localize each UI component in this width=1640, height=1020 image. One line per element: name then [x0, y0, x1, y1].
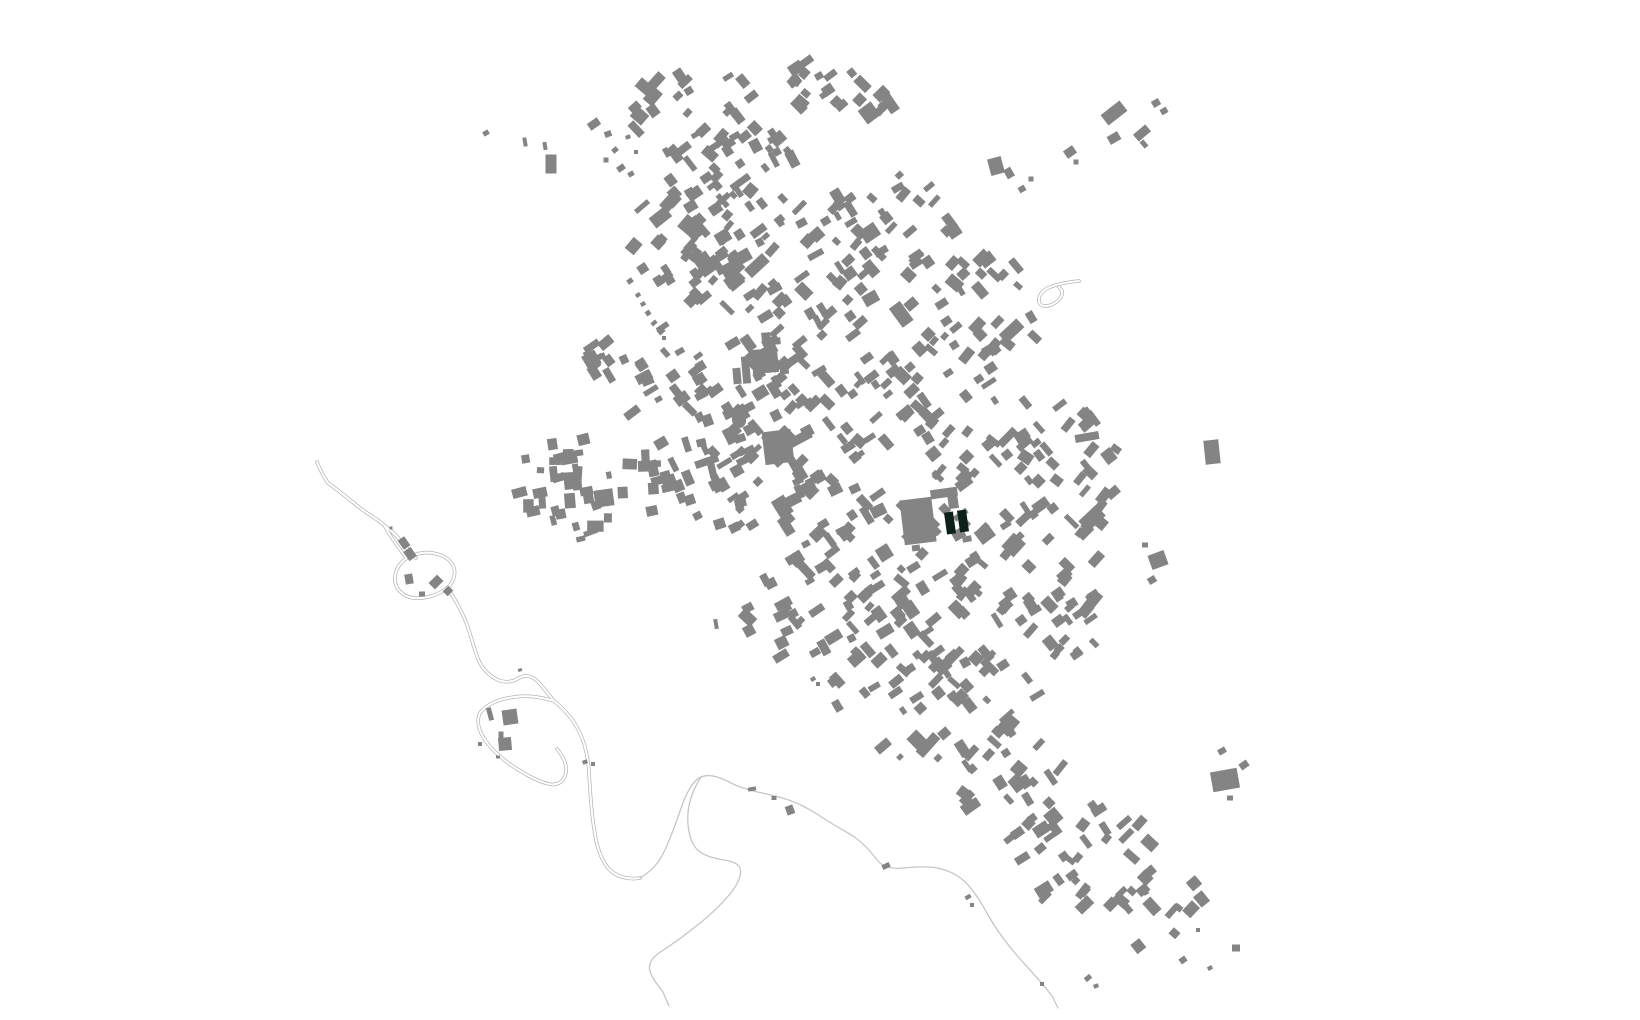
building [999, 335, 1016, 351]
building [1015, 614, 1028, 627]
building [1142, 543, 1148, 548]
building [648, 482, 659, 494]
building [923, 181, 935, 192]
building [532, 487, 548, 499]
building [925, 612, 942, 628]
building [502, 709, 519, 726]
building [906, 561, 921, 574]
map-canvas [0, 0, 1640, 1020]
building [860, 351, 874, 364]
building [973, 373, 984, 384]
building [1021, 672, 1033, 685]
building [989, 454, 1003, 468]
building [867, 555, 880, 570]
building [1126, 886, 1137, 897]
building [511, 486, 528, 499]
building [971, 281, 989, 300]
building [1140, 139, 1149, 148]
landmark-building [779, 360, 789, 375]
building [1165, 903, 1180, 919]
building [841, 253, 855, 267]
building [842, 294, 854, 306]
building [942, 424, 956, 438]
building [964, 894, 971, 900]
building [537, 467, 544, 473]
building [572, 475, 583, 491]
building [900, 266, 917, 283]
building [987, 156, 1005, 176]
building [1040, 982, 1044, 986]
building [1186, 875, 1202, 891]
building [653, 435, 669, 450]
building [795, 217, 808, 229]
building [562, 473, 572, 479]
building [881, 862, 890, 870]
building [769, 409, 782, 423]
building [706, 382, 723, 398]
building [634, 199, 650, 214]
building [794, 281, 814, 301]
building [1003, 167, 1015, 180]
building [1123, 848, 1141, 865]
building [958, 346, 975, 364]
building [1196, 928, 1200, 932]
building [810, 676, 816, 682]
building [1182, 900, 1200, 918]
building [1083, 441, 1099, 458]
building [1142, 896, 1161, 916]
building [576, 535, 586, 542]
building [928, 194, 941, 207]
building [911, 340, 928, 357]
building [429, 575, 444, 590]
figure-ground-map [0, 0, 1640, 1020]
building [1053, 759, 1069, 776]
building [390, 527, 393, 530]
building [634, 150, 638, 154]
building [932, 568, 948, 581]
building [843, 200, 858, 218]
building [623, 404, 641, 421]
building [419, 592, 425, 597]
building [784, 400, 799, 415]
building [574, 449, 584, 456]
landmark-building [773, 337, 781, 345]
building [611, 146, 619, 154]
building [1074, 431, 1099, 443]
building [751, 384, 769, 401]
building [757, 309, 774, 324]
building [546, 155, 557, 174]
building [822, 416, 836, 432]
building [682, 108, 692, 118]
building [745, 518, 759, 531]
building [1030, 438, 1041, 449]
building [716, 457, 732, 470]
building [846, 633, 856, 643]
building [779, 389, 791, 401]
building [722, 72, 734, 82]
building [853, 75, 871, 93]
building [834, 384, 848, 398]
buildings-layer [511, 54, 1210, 954]
building [693, 351, 703, 360]
building [1217, 746, 1227, 755]
building [499, 732, 504, 739]
building [1118, 828, 1134, 844]
building [1151, 98, 1161, 108]
building [660, 347, 671, 358]
building [808, 603, 825, 618]
building [654, 395, 663, 403]
building [1147, 575, 1157, 585]
building [640, 301, 646, 307]
highlighted-building [944, 511, 956, 534]
building [1001, 448, 1014, 461]
building [824, 628, 843, 645]
building [713, 619, 719, 630]
building [959, 389, 973, 404]
building [745, 304, 755, 314]
building [780, 625, 794, 638]
building [694, 454, 719, 469]
landmark-building [912, 545, 921, 552]
building [792, 200, 808, 216]
building [774, 635, 790, 650]
building [708, 275, 719, 286]
building [482, 129, 490, 136]
building [1238, 760, 1249, 771]
building [572, 522, 581, 532]
building [1013, 281, 1023, 291]
building [707, 140, 722, 153]
building [896, 753, 904, 761]
building [650, 320, 657, 327]
building [665, 368, 680, 383]
building [1014, 851, 1031, 866]
building [947, 676, 961, 689]
building [931, 284, 941, 294]
building [1033, 449, 1046, 462]
building [844, 310, 857, 323]
landmark-building [761, 332, 771, 342]
building [663, 173, 678, 188]
building [1049, 473, 1063, 487]
building [876, 623, 895, 640]
building [1107, 131, 1122, 145]
building [547, 438, 558, 451]
building [809, 647, 821, 658]
landmark-building [732, 368, 741, 385]
building [667, 457, 679, 473]
building [858, 222, 881, 244]
building [982, 748, 995, 762]
building [662, 336, 666, 340]
building [878, 433, 895, 451]
building [772, 796, 777, 800]
building [1101, 833, 1112, 845]
building [735, 158, 746, 169]
building [1045, 456, 1059, 470]
building [735, 384, 747, 398]
thin-paths-layer [640, 776, 1058, 1008]
building [752, 476, 763, 487]
building [852, 92, 867, 107]
building [884, 643, 899, 659]
building [804, 395, 822, 413]
building [975, 267, 988, 279]
building [1093, 983, 1099, 988]
building [1070, 648, 1084, 661]
building [742, 182, 759, 199]
building [909, 691, 924, 704]
building [760, 163, 770, 173]
building [496, 756, 500, 759]
building [404, 573, 414, 584]
building [847, 388, 858, 399]
building [938, 437, 949, 448]
building [880, 377, 893, 389]
building [848, 483, 861, 495]
building [903, 621, 921, 640]
building [635, 292, 641, 298]
building [990, 396, 999, 405]
building [1147, 550, 1168, 570]
building [563, 449, 574, 458]
building [961, 425, 973, 438]
building [1021, 791, 1034, 806]
building [888, 686, 904, 700]
building [831, 699, 844, 713]
path-line [649, 777, 740, 1006]
building [807, 248, 824, 261]
building [627, 170, 635, 177]
building [739, 334, 757, 353]
building [915, 580, 930, 596]
building [748, 138, 763, 154]
building [925, 445, 942, 462]
building [521, 454, 530, 464]
building [1023, 622, 1039, 638]
building [1159, 107, 1168, 116]
building [735, 73, 750, 89]
building [1052, 398, 1067, 412]
building [576, 433, 590, 446]
building [683, 86, 694, 97]
building [866, 192, 877, 203]
building [795, 559, 816, 581]
building [902, 225, 917, 239]
building [587, 117, 601, 130]
building [744, 89, 759, 103]
building [1079, 484, 1091, 497]
building [713, 228, 732, 246]
building [1075, 817, 1090, 833]
building [1136, 883, 1151, 898]
building [683, 155, 698, 172]
building [672, 90, 683, 101]
building [1052, 873, 1065, 887]
building [996, 658, 1010, 671]
building [912, 194, 925, 207]
building [772, 648, 790, 664]
building [893, 573, 910, 589]
building [1131, 815, 1147, 832]
building [591, 762, 595, 766]
building [674, 347, 685, 357]
building [1029, 177, 1034, 182]
building [820, 215, 832, 226]
building [1084, 974, 1093, 982]
building [522, 137, 528, 147]
building [982, 695, 991, 704]
building [1075, 895, 1095, 914]
landmark-building [947, 493, 959, 509]
building [604, 513, 612, 522]
building [724, 336, 741, 351]
building [1021, 559, 1036, 574]
building [823, 532, 837, 548]
building [1000, 748, 1011, 759]
building [990, 315, 1004, 329]
building [974, 523, 996, 545]
building [899, 706, 908, 715]
building [683, 493, 696, 506]
building [846, 67, 857, 78]
building [801, 539, 811, 548]
building [719, 300, 735, 316]
building [1042, 533, 1055, 546]
building [1227, 796, 1233, 801]
building [970, 903, 974, 907]
building [846, 620, 860, 634]
building [1079, 834, 1092, 849]
building [911, 372, 924, 385]
building [616, 163, 626, 173]
building [840, 421, 854, 435]
building [1033, 421, 1046, 434]
building [604, 130, 613, 138]
building [949, 340, 960, 351]
building [1063, 145, 1077, 159]
building [1101, 100, 1128, 125]
building [883, 389, 894, 399]
building [498, 737, 512, 751]
landmark-building [593, 488, 614, 507]
building [945, 255, 961, 271]
building [604, 158, 609, 163]
building [619, 354, 630, 365]
building [486, 707, 494, 721]
building [1088, 550, 1105, 568]
building [523, 499, 534, 512]
building [756, 197, 768, 210]
landmark-building [751, 348, 779, 374]
building [933, 753, 942, 762]
building [875, 543, 894, 562]
building [685, 185, 704, 202]
building [816, 682, 820, 686]
building [1008, 257, 1024, 274]
building [818, 393, 835, 410]
building [883, 513, 894, 524]
building [1064, 514, 1080, 530]
building [785, 804, 796, 815]
building [816, 329, 827, 340]
path-line [640, 776, 1058, 1008]
building [1019, 395, 1033, 410]
building [1003, 793, 1014, 805]
building [1098, 821, 1111, 836]
building [606, 471, 612, 479]
building [949, 321, 963, 334]
building [681, 436, 692, 452]
building [1140, 834, 1159, 853]
building [602, 367, 616, 384]
building [777, 193, 788, 204]
building [869, 487, 886, 502]
building [794, 270, 810, 284]
building [814, 71, 824, 81]
building [1031, 473, 1046, 488]
building [692, 510, 703, 521]
building [645, 505, 658, 517]
building [992, 774, 1008, 790]
building [934, 297, 949, 310]
building [1017, 185, 1026, 194]
building [874, 737, 892, 754]
building [1130, 938, 1146, 954]
building [626, 277, 634, 285]
building [1029, 689, 1045, 702]
building [636, 262, 649, 275]
building [1074, 160, 1079, 165]
landmark-building [762, 429, 795, 465]
building [868, 681, 881, 692]
building [1032, 738, 1045, 751]
building [823, 69, 838, 82]
building [870, 570, 882, 581]
building [895, 170, 905, 180]
building [845, 328, 861, 342]
building [940, 332, 949, 341]
building [635, 359, 648, 372]
building [983, 361, 998, 375]
building [888, 674, 904, 689]
building [1178, 956, 1187, 965]
building [832, 237, 842, 247]
building [713, 517, 727, 530]
building [699, 171, 713, 185]
building [597, 334, 615, 351]
building [721, 209, 733, 222]
building [1133, 124, 1151, 141]
building [542, 142, 547, 151]
building [564, 493, 576, 509]
building [940, 315, 953, 327]
building [617, 487, 627, 499]
building [1168, 927, 1180, 939]
building [897, 564, 906, 573]
building [733, 228, 746, 241]
building [744, 200, 755, 212]
building [859, 246, 873, 260]
building [1210, 768, 1240, 792]
building [1027, 329, 1042, 344]
building [869, 411, 883, 424]
building [943, 368, 954, 378]
landmark-building [899, 497, 936, 546]
